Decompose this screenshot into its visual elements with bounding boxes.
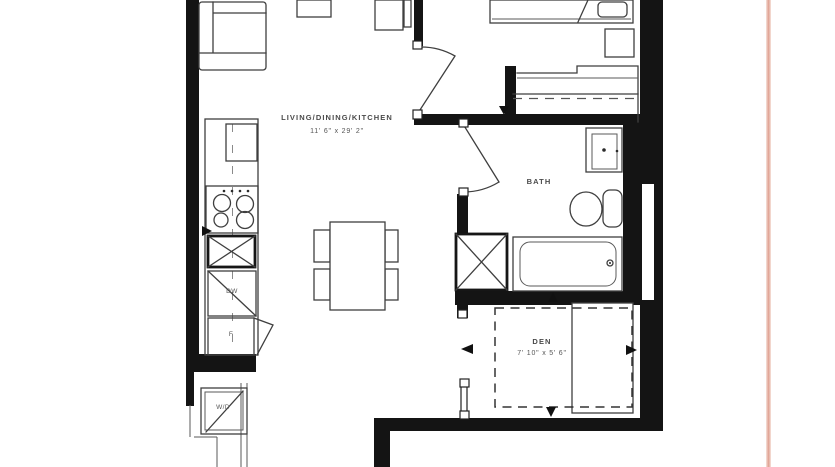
dining-chair <box>385 269 398 300</box>
den-desk <box>572 303 633 413</box>
wall-end-cap <box>458 310 467 318</box>
wall-end-cap <box>460 379 469 387</box>
toilet-tank <box>603 190 622 227</box>
dining-table <box>330 222 385 310</box>
faucet-icon <box>616 150 619 153</box>
tv-console <box>375 0 403 30</box>
entry-corridor-wall <box>241 383 247 467</box>
left-wall <box>186 0 199 358</box>
living-room-dimensions: 11' 6" x 29' 2" <box>310 128 364 135</box>
laundry-closet <box>201 388 247 434</box>
sofa-cushions <box>199 2 266 53</box>
kitchen <box>202 119 273 355</box>
stove-knob <box>247 190 250 193</box>
page-edge-line <box>766 0 771 467</box>
door-jamb <box>459 119 468 127</box>
wall-end-cap <box>460 411 469 419</box>
bathtub-inner <box>520 242 616 286</box>
den-label: DEN <box>532 337 551 346</box>
dishwasher-label: DW <box>226 288 238 295</box>
bedroom-bath-wall <box>414 114 663 125</box>
bath-right-inner-wall <box>623 125 641 305</box>
dining-chair <box>385 230 398 262</box>
fridge-door-swing <box>254 318 273 355</box>
bedroom-door-swing <box>418 47 455 113</box>
door-jamb <box>413 41 422 49</box>
den-dimensions: 7' 10" x 5' 6" <box>517 350 567 357</box>
dining-chair <box>314 230 330 262</box>
door-jamb <box>459 188 468 196</box>
bedroom-divider-wall <box>414 0 423 46</box>
bottom-left-wall-leg <box>374 418 390 467</box>
washer-dryer-label: W/D <box>216 404 230 411</box>
coffee-table <box>297 0 331 17</box>
fridge-label: F <box>229 331 233 338</box>
tv-console-side <box>404 0 411 27</box>
burner-icon <box>214 213 228 227</box>
kitchen-cabinet <box>226 124 257 161</box>
stove-knob <box>239 190 242 193</box>
stove-knob <box>231 190 234 193</box>
dining-chair <box>314 269 330 300</box>
den-arrow-left-icon <box>461 344 473 354</box>
bottom-wall <box>374 418 663 431</box>
sink-x-icon <box>208 236 255 267</box>
bath-label: BATH <box>527 177 552 186</box>
bed-pillow <box>598 2 627 17</box>
burner-icon <box>237 212 254 229</box>
floor-plan-page: LIVING/DINING/KITCHEN 11' 6" x 29' 2" BA… <box>0 0 835 467</box>
entry-niche-line <box>194 437 217 467</box>
living-room-label: LIVING/DINING/KITCHEN <box>281 113 393 122</box>
tub-drain-dot <box>609 262 611 264</box>
living-furniture <box>199 0 411 310</box>
kitchen-end-wall <box>186 354 256 372</box>
right-wall-chase <box>642 184 654 300</box>
sink-marker-icon <box>202 226 212 236</box>
sofa <box>199 2 266 70</box>
burner-icon <box>237 196 254 213</box>
floor-plan-drawing <box>0 0 835 467</box>
washer-dryer-diagonal <box>206 391 243 432</box>
door-jamb <box>413 110 422 119</box>
burner-icon <box>214 195 231 212</box>
left-wall-lower <box>186 372 194 406</box>
toilet-bowl <box>570 192 602 226</box>
bathtub <box>513 237 622 291</box>
bathroom-door-swing <box>463 124 499 192</box>
bed <box>490 0 633 23</box>
den-arrow-down-icon <box>546 407 556 417</box>
faucet-icon <box>602 148 606 152</box>
nightstand <box>605 29 634 57</box>
stove-knob <box>223 190 226 193</box>
